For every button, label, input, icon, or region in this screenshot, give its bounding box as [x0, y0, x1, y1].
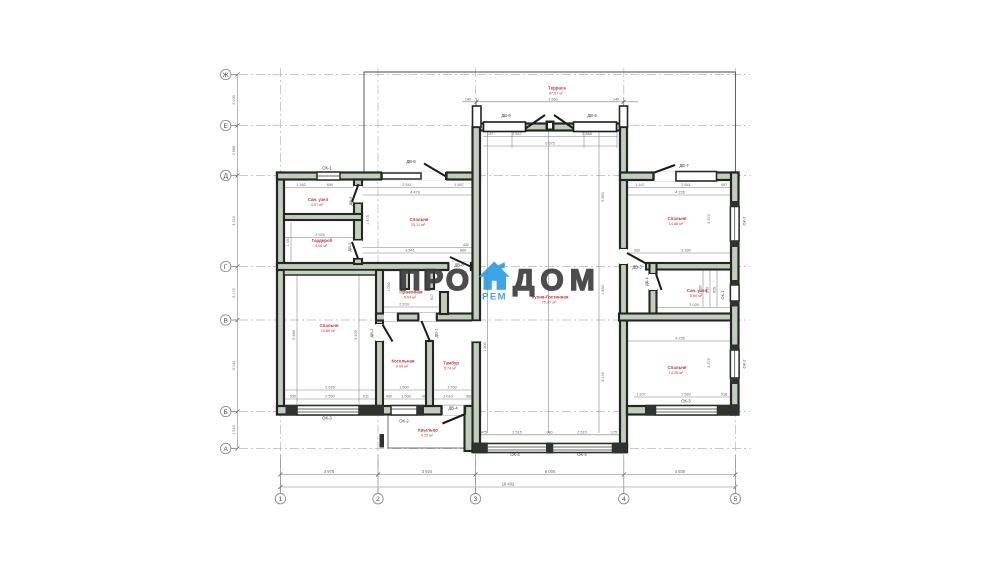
svg-text:ДВ-7: ДВ-7 [679, 163, 689, 168]
svg-text:9.00 м²: 9.00 м² [396, 364, 409, 368]
svg-text:2 925: 2 925 [315, 233, 325, 237]
svg-text:300: 300 [466, 395, 472, 399]
svg-text:4 479: 4 479 [410, 191, 420, 195]
svg-text:18 402: 18 402 [502, 482, 515, 487]
svg-text:1 050: 1 050 [387, 282, 391, 292]
svg-text:400: 400 [386, 395, 392, 399]
svg-text:475: 475 [481, 430, 487, 434]
svg-text:1 010: 1 010 [443, 395, 453, 399]
svg-text:РЕМ: РЕМ [482, 292, 507, 303]
svg-text:1 382: 1 382 [296, 183, 306, 187]
svg-text:3 541: 3 541 [405, 249, 415, 253]
svg-text:980: 980 [546, 430, 552, 434]
svg-text:ОК-2: ОК-2 [399, 419, 409, 424]
svg-text:ДВ-9: ДВ-9 [587, 113, 597, 118]
svg-text:ДВ-9: ДВ-9 [501, 113, 511, 118]
svg-text:2 100: 2 100 [232, 95, 236, 105]
svg-text:2 060: 2 060 [232, 146, 236, 156]
svg-text:ОК-4: ОК-4 [510, 452, 520, 457]
svg-text:3 134: 3 134 [232, 361, 236, 371]
svg-text:ОК-2: ОК-2 [742, 216, 747, 226]
svg-text:ДВ-5: ДВ-5 [348, 196, 353, 206]
svg-text:2 547: 2 547 [512, 132, 522, 136]
svg-text:ДВ-3: ДВ-3 [632, 265, 642, 270]
svg-text:А: А [223, 446, 228, 453]
svg-text:3 149: 3 149 [601, 372, 605, 382]
svg-text:1 475: 1 475 [366, 215, 370, 225]
svg-text:Г: Г [224, 264, 228, 271]
svg-text:1 187: 1 187 [635, 183, 645, 187]
svg-text:В: В [223, 318, 228, 325]
svg-text:1 830: 1 830 [601, 285, 605, 295]
svg-text:5: 5 [734, 496, 738, 503]
svg-text:ДВ-2: ДВ-2 [347, 242, 352, 252]
svg-text:611: 611 [363, 395, 369, 399]
svg-text:1 500: 1 500 [399, 386, 409, 390]
svg-text:Спальня: Спальня [668, 365, 687, 370]
svg-text:497: 497 [721, 183, 727, 187]
svg-text:ДВ-2: ДВ-2 [369, 328, 374, 338]
svg-text:Спальня: Спальня [320, 323, 339, 328]
svg-text:175: 175 [611, 430, 617, 434]
svg-text:ОК-1: ОК-1 [720, 290, 725, 300]
svg-text:452: 452 [463, 243, 469, 247]
svg-text:3 026: 3 026 [689, 303, 699, 307]
svg-text:5 650: 5 650 [601, 192, 605, 202]
svg-text:4.97 м²: 4.97 м² [311, 203, 324, 207]
svg-text:ДВ-1: ДВ-1 [434, 328, 439, 338]
svg-text:860: 860 [460, 249, 466, 253]
svg-text:2 209: 2 209 [399, 303, 409, 307]
svg-text:2 590: 2 590 [325, 395, 335, 399]
svg-text:14.28 м²: 14.28 м² [669, 371, 684, 375]
svg-text:900: 900 [634, 249, 640, 253]
svg-text:1 587: 1 587 [454, 183, 464, 187]
svg-text:2 541: 2 541 [402, 183, 412, 187]
svg-text:ОК-1: ОК-1 [322, 166, 332, 171]
svg-text:147: 147 [487, 132, 493, 136]
svg-text:ОК-4: ОК-4 [577, 452, 587, 457]
svg-text:1 207: 1 207 [636, 393, 646, 397]
svg-text:Спальня: Спальня [668, 216, 687, 221]
svg-text:4 226: 4 226 [675, 191, 685, 195]
svg-text:Ж: Ж [223, 72, 229, 79]
svg-text:3 409: 3 409 [354, 330, 358, 340]
svg-text:ОК-2: ОК-2 [742, 359, 747, 369]
svg-text:140: 140 [613, 97, 619, 101]
svg-text:75.37 м²: 75.37 м² [542, 300, 557, 304]
svg-text:3 330: 3 330 [681, 249, 691, 253]
svg-text:2 629: 2 629 [325, 386, 335, 390]
svg-text:Сан. узел: Сан. узел [308, 197, 329, 202]
svg-text:5 489: 5 489 [292, 330, 296, 340]
svg-text:Д: Д [223, 173, 228, 180]
svg-text:ДВ-4: ДВ-4 [448, 406, 458, 411]
svg-text:518: 518 [721, 393, 727, 397]
svg-text:140: 140 [465, 97, 471, 101]
svg-text:Крыльцо: Крыльцо [418, 428, 438, 433]
svg-text:5.60 м²: 5.60 м² [690, 294, 703, 298]
svg-text:5 575: 5 575 [545, 142, 555, 146]
svg-text:1 500: 1 500 [483, 342, 487, 352]
svg-text:1 510: 1 510 [232, 425, 236, 435]
svg-text:2 541: 2 541 [681, 183, 691, 187]
svg-text:Тамбур: Тамбур [443, 361, 459, 366]
svg-text:4: 4 [622, 496, 626, 503]
svg-text:5.74 м²: 5.74 м² [444, 366, 457, 370]
svg-text:9.20 м²: 9.20 м² [421, 433, 434, 437]
svg-text:ДОМ: ДОМ [513, 264, 601, 297]
svg-text:Гардероб: Гардероб [312, 238, 333, 243]
svg-text:Котельная: Котельная [392, 359, 415, 364]
svg-text:1 451: 1 451 [286, 237, 290, 247]
svg-text:625: 625 [713, 287, 717, 293]
svg-text:Б: Б [224, 409, 228, 416]
svg-text:ОК-3: ОК-3 [322, 416, 332, 421]
svg-text:2 868: 2 868 [582, 132, 592, 136]
svg-text:ОК-3: ОК-3 [681, 399, 691, 404]
svg-text:2 515: 2 515 [577, 430, 587, 434]
svg-text:2 580: 2 580 [681, 393, 691, 397]
svg-text:Спальня: Спальня [410, 217, 429, 222]
svg-text:1: 1 [279, 496, 283, 503]
svg-text:3 375: 3 375 [707, 358, 711, 368]
svg-text:15.11 м²: 15.11 м² [411, 223, 426, 227]
svg-text:2 515: 2 515 [512, 430, 522, 434]
svg-text:ПРО: ПРО [399, 264, 472, 297]
svg-text:14.86 м²: 14.86 м² [669, 222, 684, 226]
svg-text:3 978: 3 978 [324, 469, 335, 474]
svg-text:530: 530 [290, 395, 296, 399]
svg-text:47.57 м²: 47.57 м² [549, 91, 564, 95]
svg-text:Сан. узел: Сан. узел [687, 288, 708, 293]
svg-text:1 000: 1 000 [401, 395, 411, 399]
svg-text:3 924: 3 924 [422, 469, 433, 474]
svg-text:4 500: 4 500 [675, 469, 686, 474]
svg-text:Терраса: Терраса [548, 86, 566, 91]
svg-text:1 700: 1 700 [447, 386, 457, 390]
svg-text:Е: Е [223, 123, 228, 130]
svg-text:3: 3 [474, 496, 478, 503]
svg-text:3 724: 3 724 [232, 216, 236, 226]
svg-text:3 560: 3 560 [548, 97, 558, 101]
svg-text:4.06 м²: 4.06 м² [315, 244, 328, 248]
svg-text:15.86 м²: 15.86 м² [321, 329, 336, 333]
svg-text:3 374: 3 374 [707, 214, 711, 224]
svg-text:5 172: 5 172 [232, 288, 236, 298]
svg-text:ДВ-6: ДВ-6 [406, 159, 416, 164]
svg-text:2: 2 [376, 496, 380, 503]
svg-text:4 226: 4 226 [675, 337, 685, 341]
svg-text:6 000: 6 000 [545, 469, 556, 474]
svg-text:690: 690 [327, 183, 333, 187]
svg-text:ДВ-1: ДВ-1 [644, 276, 649, 286]
